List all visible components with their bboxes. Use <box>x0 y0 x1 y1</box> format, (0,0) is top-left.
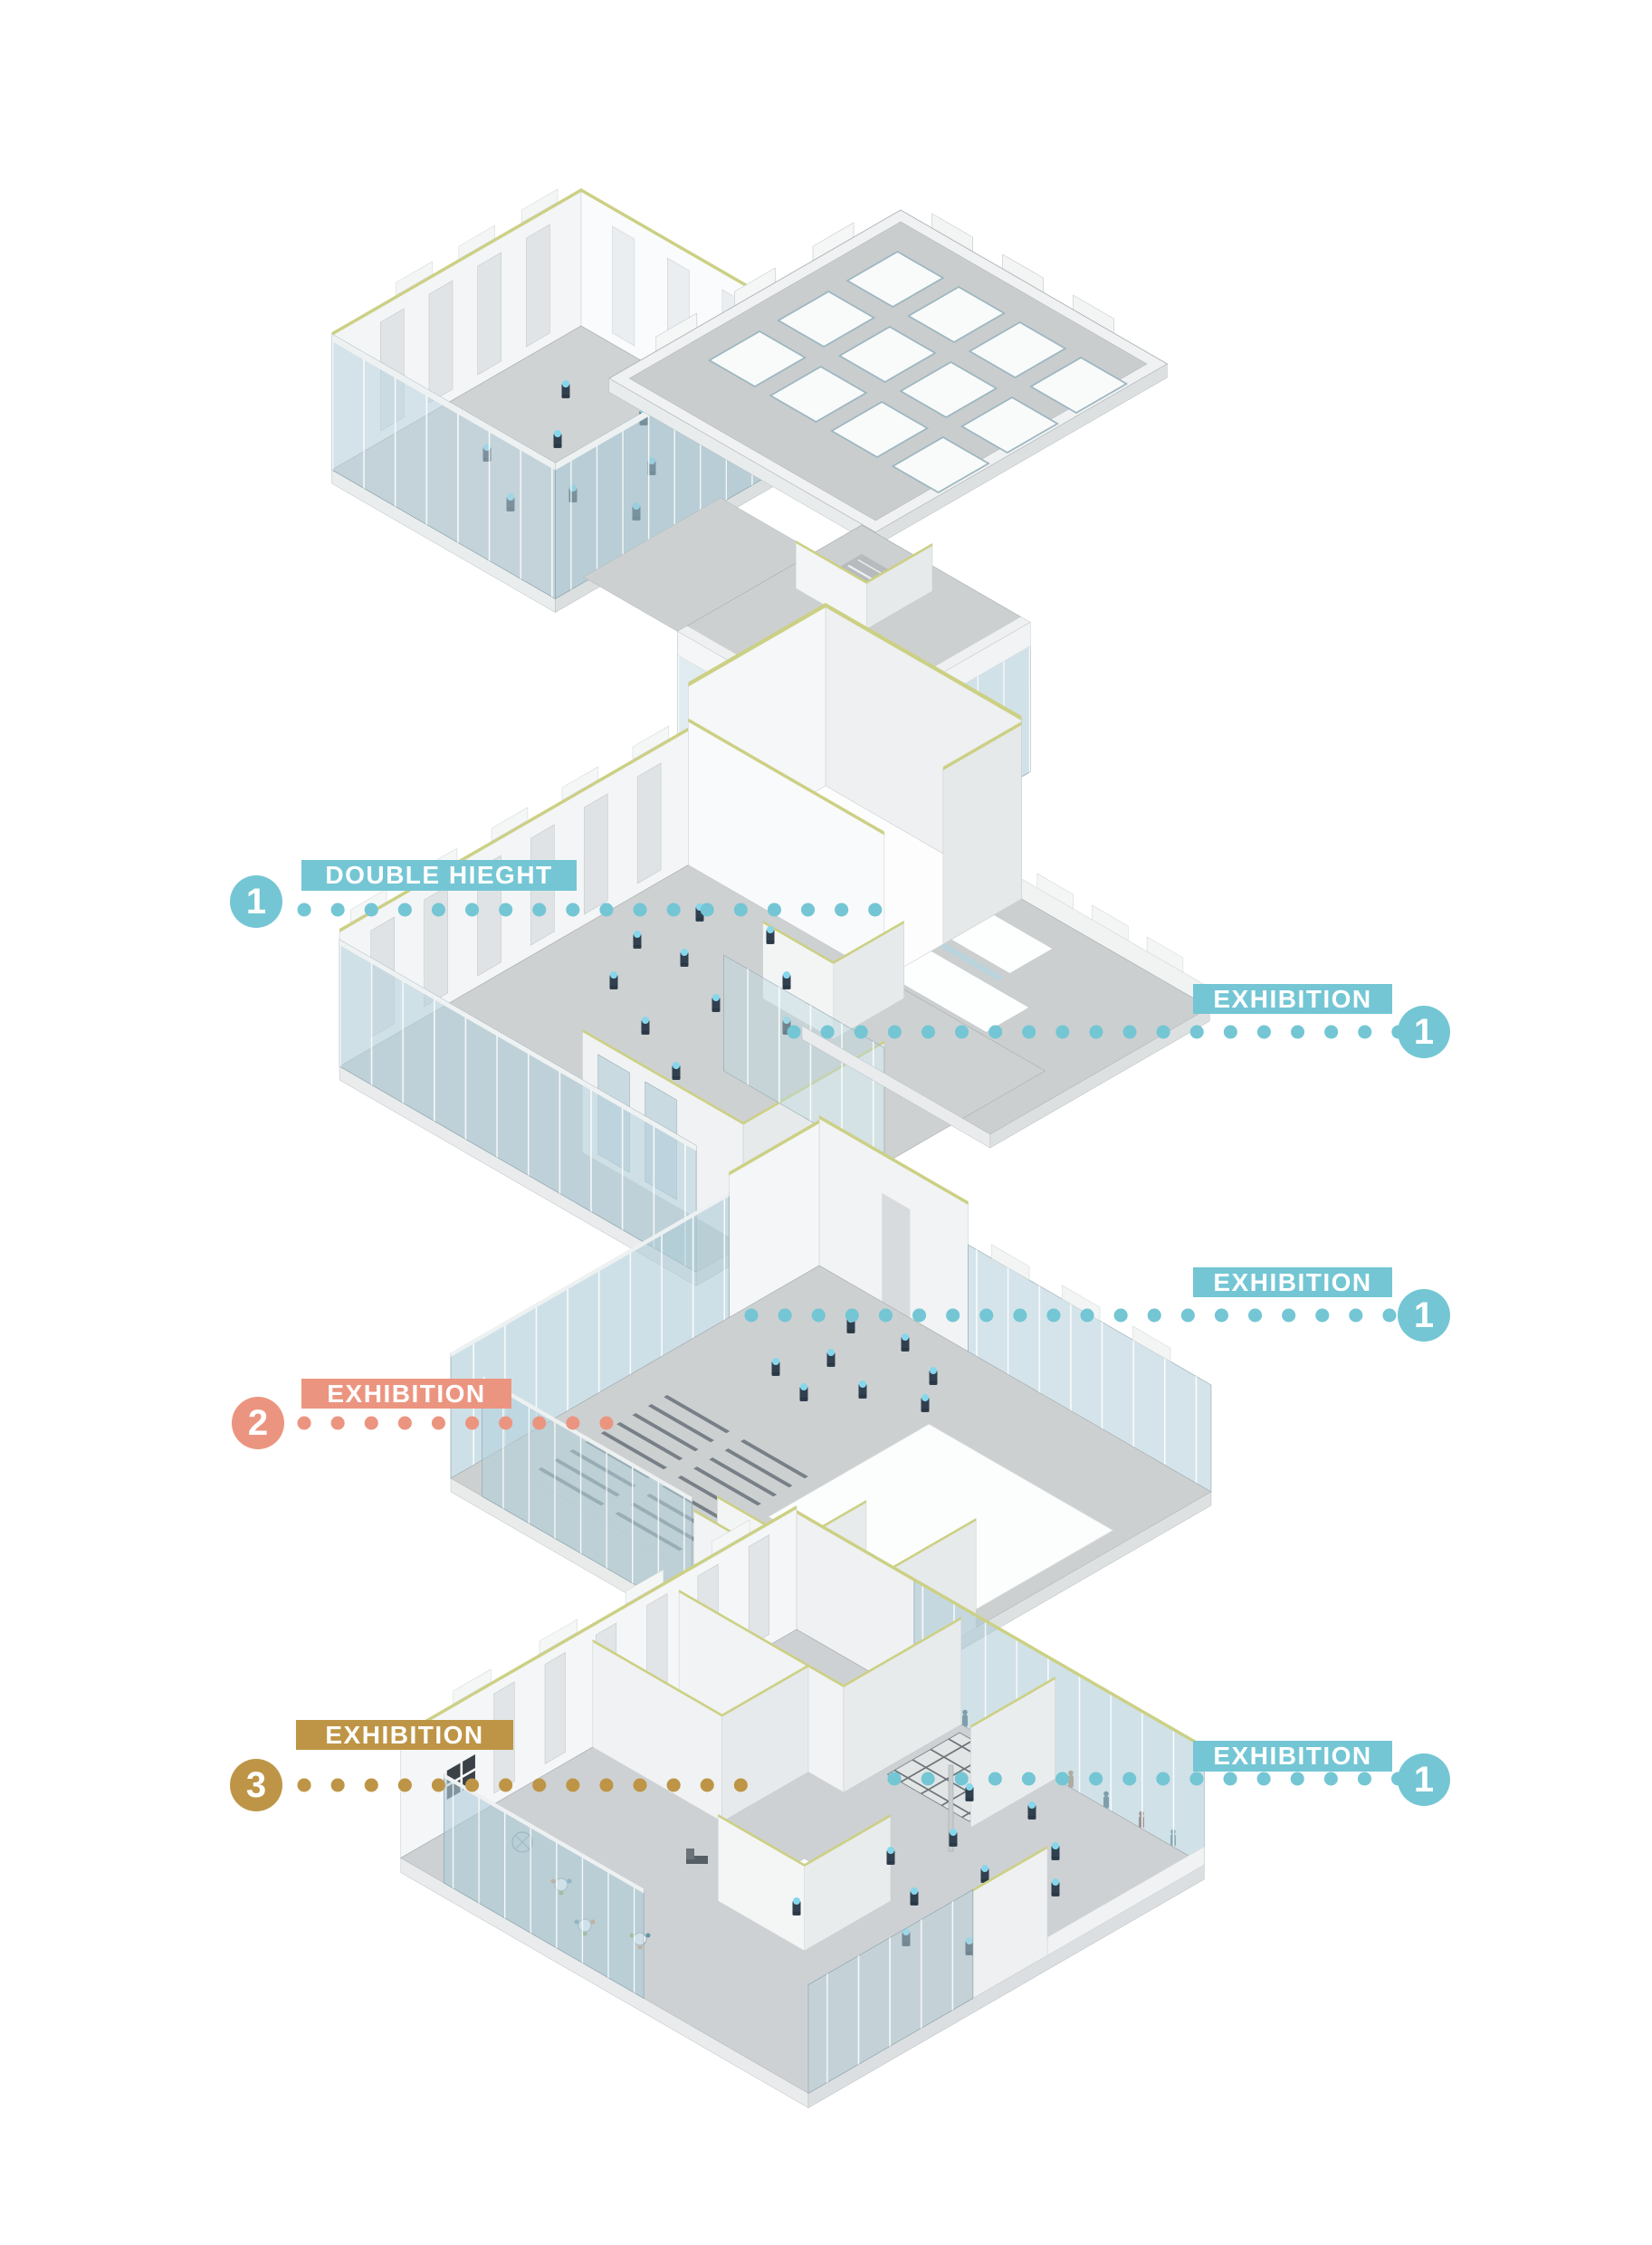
badge-exhibition-lower-right: 1 <box>1398 1753 1450 1806</box>
badge-exhibition-lower-left: 3 <box>230 1759 282 1811</box>
label-double-height: DOUBLE HIEGHT <box>301 860 577 891</box>
exploded-axon-drawing <box>0 0 1652 2245</box>
badge-exhibition-upper-right: 1 <box>1398 1006 1450 1058</box>
diagram-canvas: 1 DOUBLE HIEGHT EXHIBITION 1 EXHIBITION … <box>0 0 1652 2245</box>
label-exhibition-mid-right: EXHIBITION <box>1193 1267 1392 1297</box>
label-exhibition-mid-left: EXHIBITION <box>301 1379 511 1409</box>
label-exhibition-lower-left: EXHIBITION <box>296 1720 513 1750</box>
label-exhibition-lower-right: EXHIBITION <box>1193 1741 1392 1772</box>
badge-double-height: 1 <box>230 875 282 928</box>
badge-exhibition-mid-left: 2 <box>232 1397 284 1449</box>
badge-exhibition-mid-right: 1 <box>1398 1289 1450 1342</box>
floor-ground-level <box>401 1493 1205 2108</box>
label-exhibition-upper-right: EXHIBITION <box>1193 984 1392 1014</box>
